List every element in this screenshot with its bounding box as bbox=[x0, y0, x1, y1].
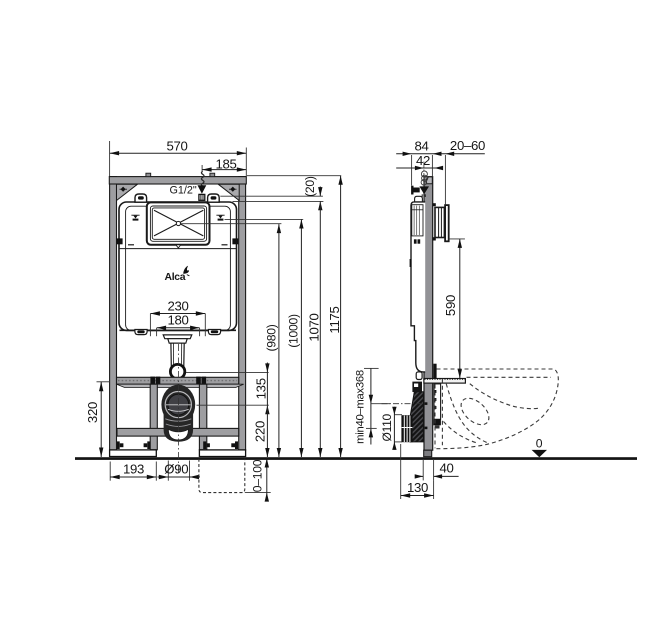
svg-text:1070: 1070 bbox=[307, 313, 322, 341]
svg-text:G1/2": G1/2" bbox=[170, 184, 197, 196]
svg-text:180: 180 bbox=[167, 313, 188, 328]
svg-text:220: 220 bbox=[252, 421, 267, 442]
svg-text:(980): (980) bbox=[264, 324, 278, 351]
svg-text:320: 320 bbox=[85, 402, 100, 423]
svg-text:135: 135 bbox=[253, 378, 268, 399]
svg-text:590: 590 bbox=[443, 295, 458, 316]
svg-text:Ø110: Ø110 bbox=[380, 414, 394, 442]
svg-text:20–60: 20–60 bbox=[450, 138, 485, 153]
svg-text:230: 230 bbox=[167, 298, 188, 313]
svg-text:0: 0 bbox=[536, 436, 543, 450]
svg-text:Alca: Alca bbox=[165, 272, 186, 283]
svg-text:(20): (20) bbox=[303, 176, 317, 197]
svg-text:193: 193 bbox=[123, 461, 144, 476]
svg-text:1175: 1175 bbox=[327, 306, 342, 333]
svg-text:185: 185 bbox=[215, 156, 236, 171]
svg-text:(1000): (1000) bbox=[286, 314, 300, 348]
svg-text:40: 40 bbox=[439, 461, 453, 476]
svg-text:130: 130 bbox=[407, 480, 428, 495]
svg-text:84: 84 bbox=[414, 139, 428, 154]
svg-text:Ø90: Ø90 bbox=[164, 461, 188, 476]
svg-text:42: 42 bbox=[416, 153, 430, 168]
svg-text:570: 570 bbox=[166, 139, 187, 154]
svg-text:min40–max368: min40–max368 bbox=[354, 370, 366, 444]
svg-text:0–100: 0–100 bbox=[251, 459, 265, 492]
